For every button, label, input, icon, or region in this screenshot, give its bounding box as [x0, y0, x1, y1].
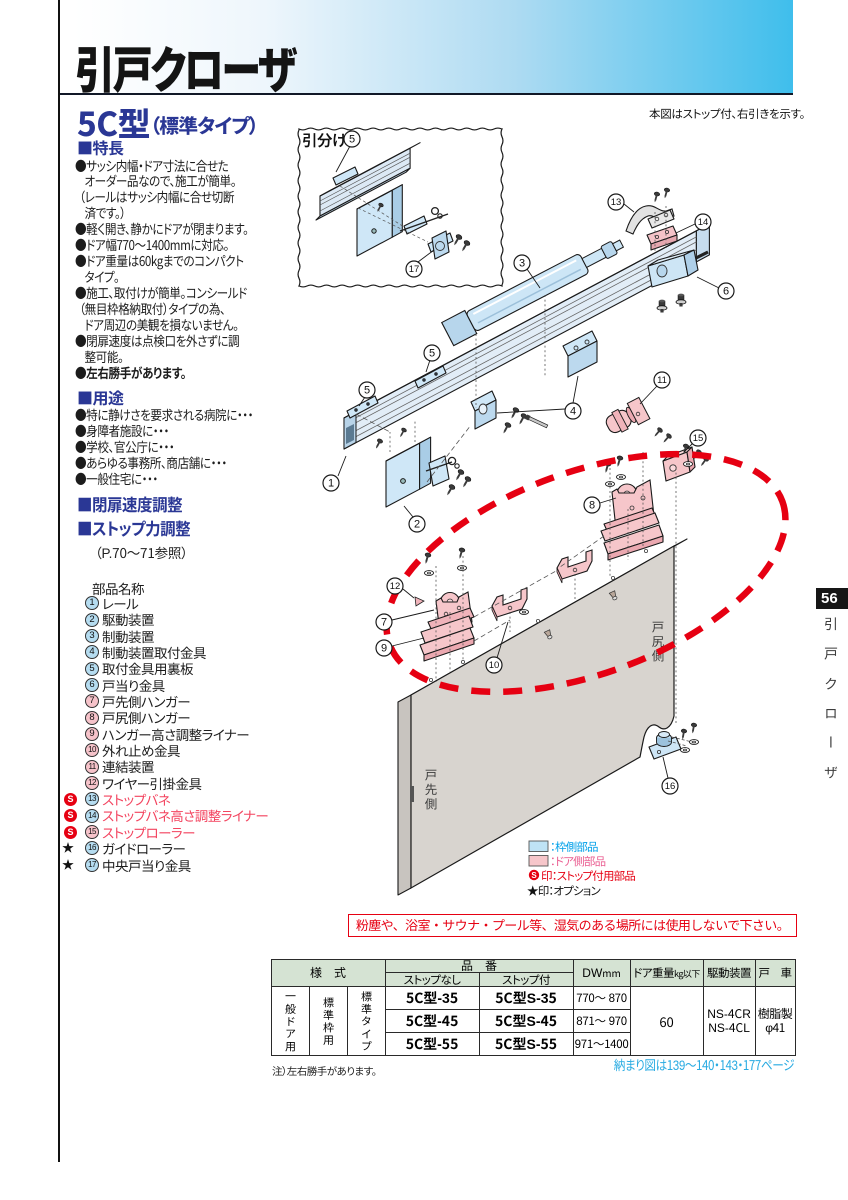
svg-text:13: 13	[611, 197, 622, 208]
svg-text:4: 4	[570, 406, 576, 418]
svg-text:11: 11	[657, 375, 667, 386]
svg-text:3: 3	[519, 258, 525, 270]
svg-text:17: 17	[409, 264, 420, 275]
svg-text:S: S	[531, 871, 537, 880]
svg-text:10: 10	[489, 660, 500, 671]
svg-text:印：ストップ付用部品: 印：ストップ付用部品	[541, 868, 635, 884]
svg-text:5: 5	[364, 385, 370, 397]
svg-text:5: 5	[349, 134, 355, 146]
svg-text:★印：オプション: ★印：オプション	[527, 883, 601, 899]
svg-text:16: 16	[665, 781, 676, 792]
svg-text:14: 14	[698, 217, 709, 228]
svg-text:7: 7	[381, 617, 387, 629]
svg-text:9: 9	[381, 643, 387, 655]
svg-text:8: 8	[589, 500, 595, 512]
svg-text:2: 2	[414, 519, 420, 531]
svg-text:5: 5	[429, 348, 435, 360]
svg-text:戸先側: 戸先側	[422, 768, 441, 812]
svg-text:戸尻側: 戸尻側	[649, 620, 668, 664]
svg-text:12: 12	[390, 581, 401, 592]
svg-text:6: 6	[723, 286, 729, 298]
svg-text:1: 1	[328, 478, 334, 490]
svg-text:15: 15	[693, 433, 704, 444]
svg-text:引分け: 引分け	[302, 129, 347, 151]
